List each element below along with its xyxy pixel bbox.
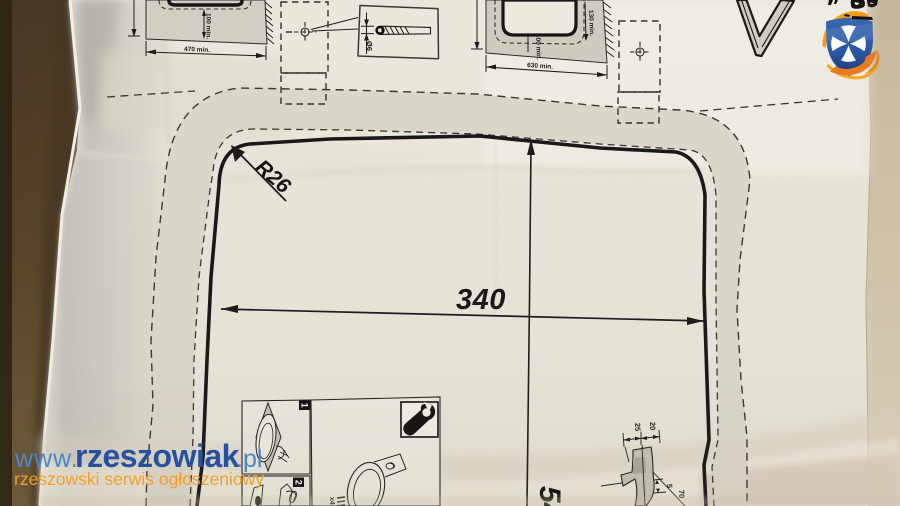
svg-text:rzeszowski serwis ogłoszeniowy: rzeszowski serwis ogłoszeniowy xyxy=(14,469,264,489)
